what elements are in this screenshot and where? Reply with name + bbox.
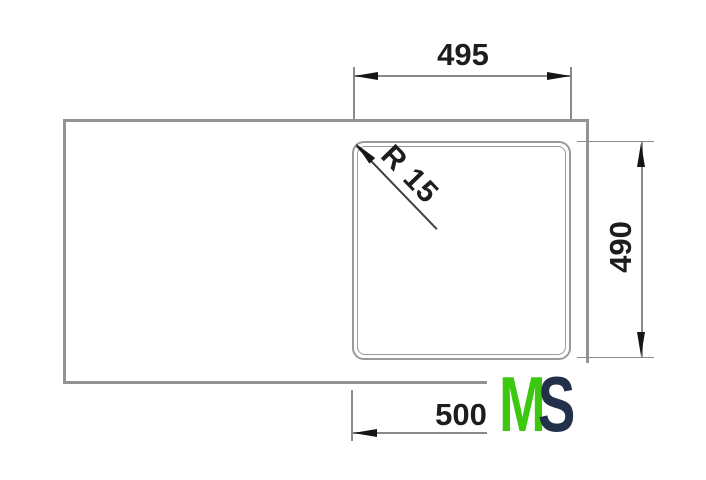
dim-500-arrow-left-icon bbox=[353, 429, 377, 437]
sink-dimension-drawing: 495 490 500 R 15 MS bbox=[0, 0, 706, 480]
dim-490-arrow-down-icon bbox=[637, 332, 645, 356]
dim-495-arrow-left-icon bbox=[354, 72, 378, 80]
dim-490-arrow-up-icon bbox=[637, 143, 645, 167]
ms-logo-letter-m: M bbox=[499, 360, 542, 448]
ms-logo: MS bbox=[499, 365, 572, 443]
dim-495-arrow-right-icon bbox=[547, 72, 571, 80]
watermark-box: MS bbox=[487, 363, 706, 480]
ms-logo-letter-s: S bbox=[538, 360, 572, 448]
dim-490-label: 490 bbox=[605, 187, 637, 307]
dim-495-label: 495 bbox=[413, 39, 513, 70]
dim-495-line bbox=[354, 75, 571, 77]
dim-490-line bbox=[641, 142, 643, 357]
